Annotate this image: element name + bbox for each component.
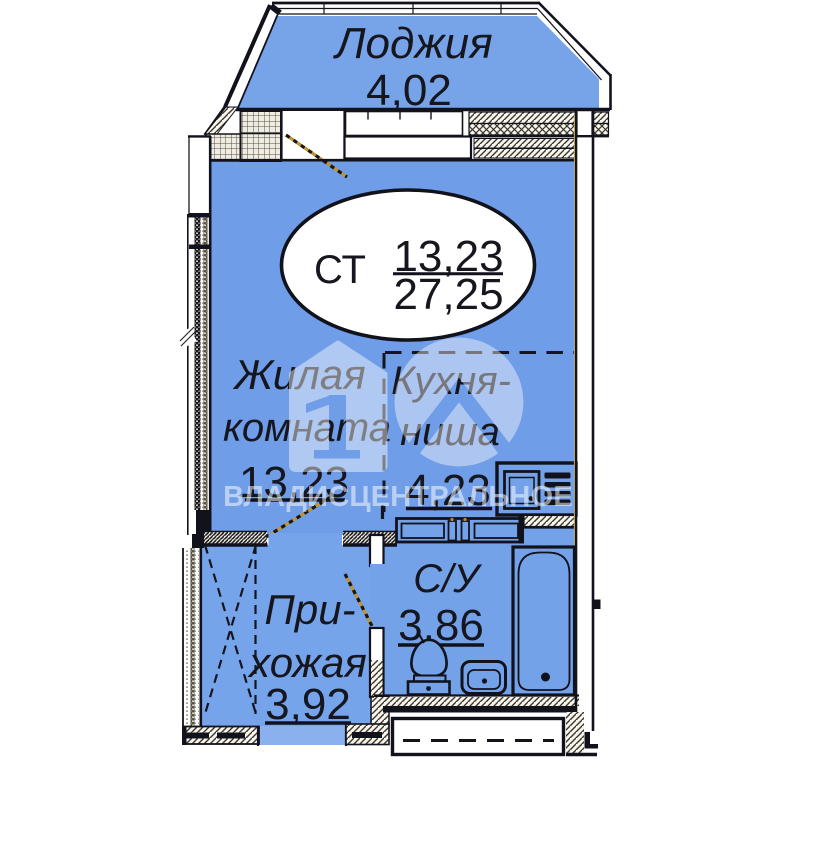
svg-text:3,86: 3,86 [398, 601, 484, 650]
svg-text:С/У: С/У [413, 557, 482, 601]
svg-text:ВЛАДИСЦЕНТРАЛЬНОЕ: ВЛАДИСЦЕНТРАЛЬНОЕ [223, 481, 573, 513]
svg-text:хожая: хожая [247, 639, 367, 686]
svg-text:4,02: 4,02 [366, 66, 452, 115]
svg-text:При-: При- [264, 586, 355, 633]
svg-text:Лоджия: Лоджия [332, 19, 492, 68]
svg-text:27,25: 27,25 [393, 270, 503, 319]
svg-text:СТ: СТ [314, 248, 366, 292]
